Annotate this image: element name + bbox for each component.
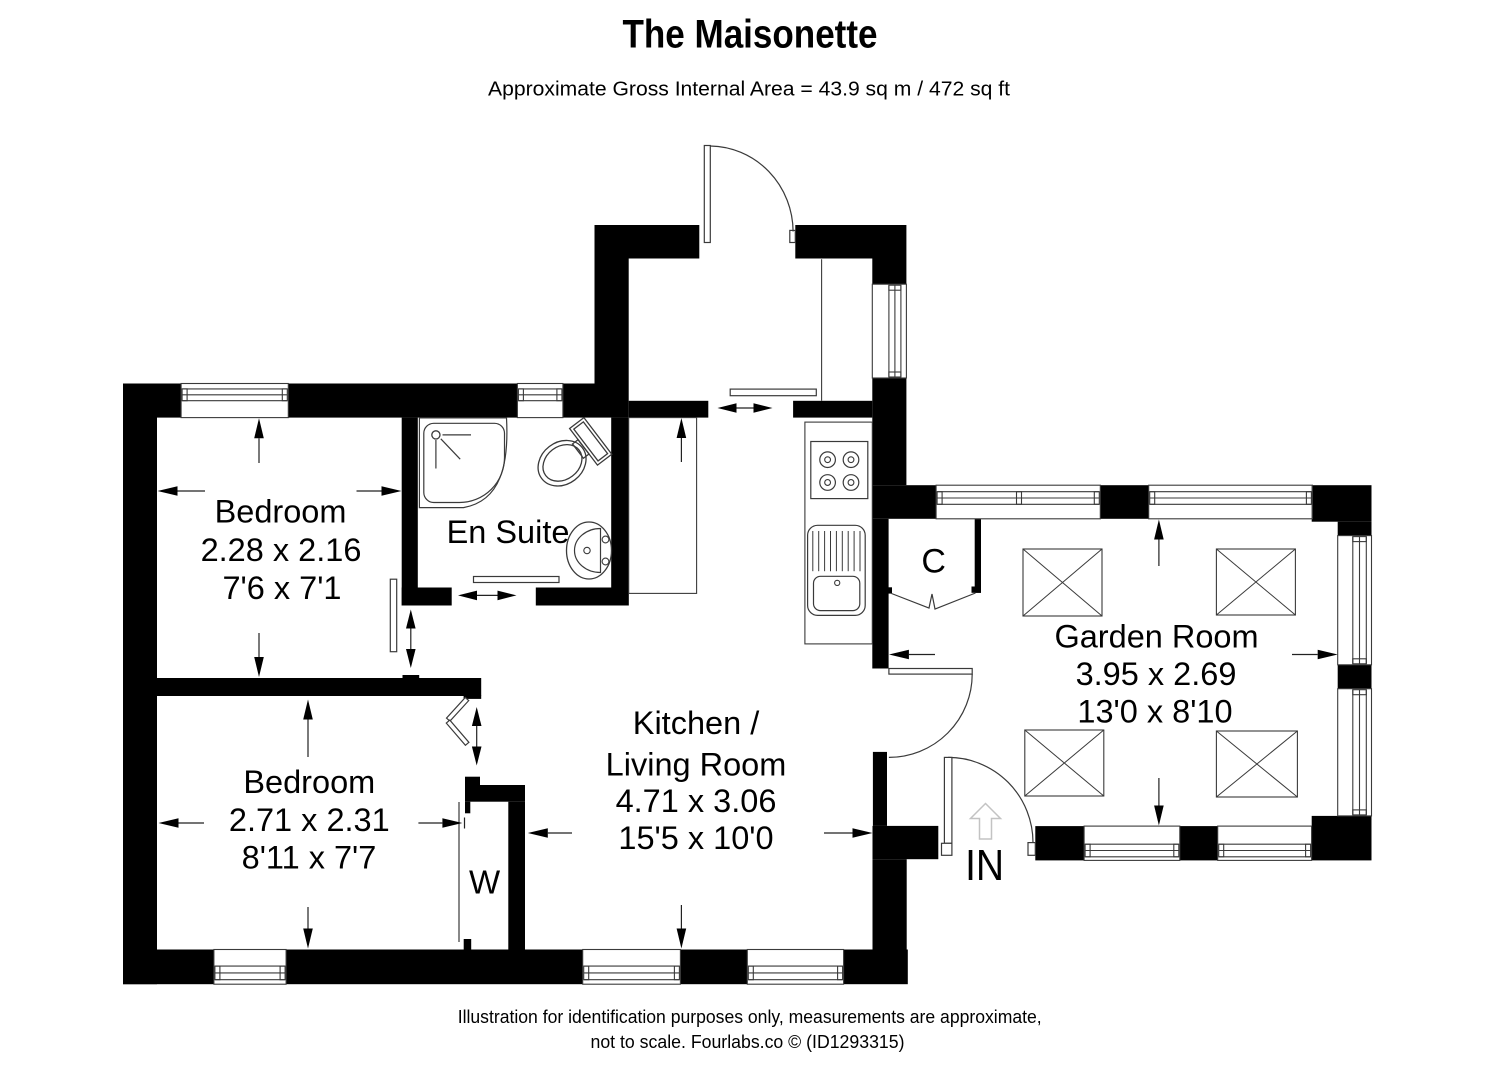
svg-text:C: C (921, 543, 946, 581)
svg-text:8'11 x 7'7: 8'11 x 7'7 (242, 840, 377, 876)
svg-text:Kitchen /: Kitchen / (633, 705, 760, 741)
svg-text:The Maisonette: The Maisonette (623, 13, 878, 57)
svg-text:7'6 x 7'1: 7'6 x 7'1 (222, 570, 341, 606)
svg-text:Living Room: Living Room (606, 747, 787, 783)
svg-text:13'0 x 8'10: 13'0 x 8'10 (1077, 694, 1232, 730)
svg-text:2.28 x 2.16: 2.28 x 2.16 (201, 532, 362, 568)
svg-text:Bedroom: Bedroom (243, 764, 375, 800)
svg-text:4.71 x 3.06: 4.71 x 3.06 (616, 783, 777, 819)
svg-text:2.71 x 2.31: 2.71 x 2.31 (229, 802, 390, 838)
svg-text:Bedroom: Bedroom (215, 494, 347, 530)
svg-text:not to scale. Fourlabs.co © (I: not to scale. Fourlabs.co © (ID1293315) (591, 1032, 905, 1052)
svg-text:W: W (469, 864, 501, 901)
svg-text:IN: IN (965, 841, 1004, 890)
svg-text:Garden Room: Garden Room (1054, 619, 1258, 655)
svg-text:3.95 x 2.69: 3.95 x 2.69 (1076, 656, 1237, 692)
svg-text:Approximate Gross Internal Are: Approximate Gross Internal Area = 43.9 s… (488, 78, 1010, 101)
svg-text:Illustration for identificatio: Illustration for identification purposes… (458, 1007, 1042, 1027)
svg-text:15'5 x 10'0: 15'5 x 10'0 (618, 820, 773, 856)
svg-text:En Suite: En Suite (447, 514, 570, 550)
